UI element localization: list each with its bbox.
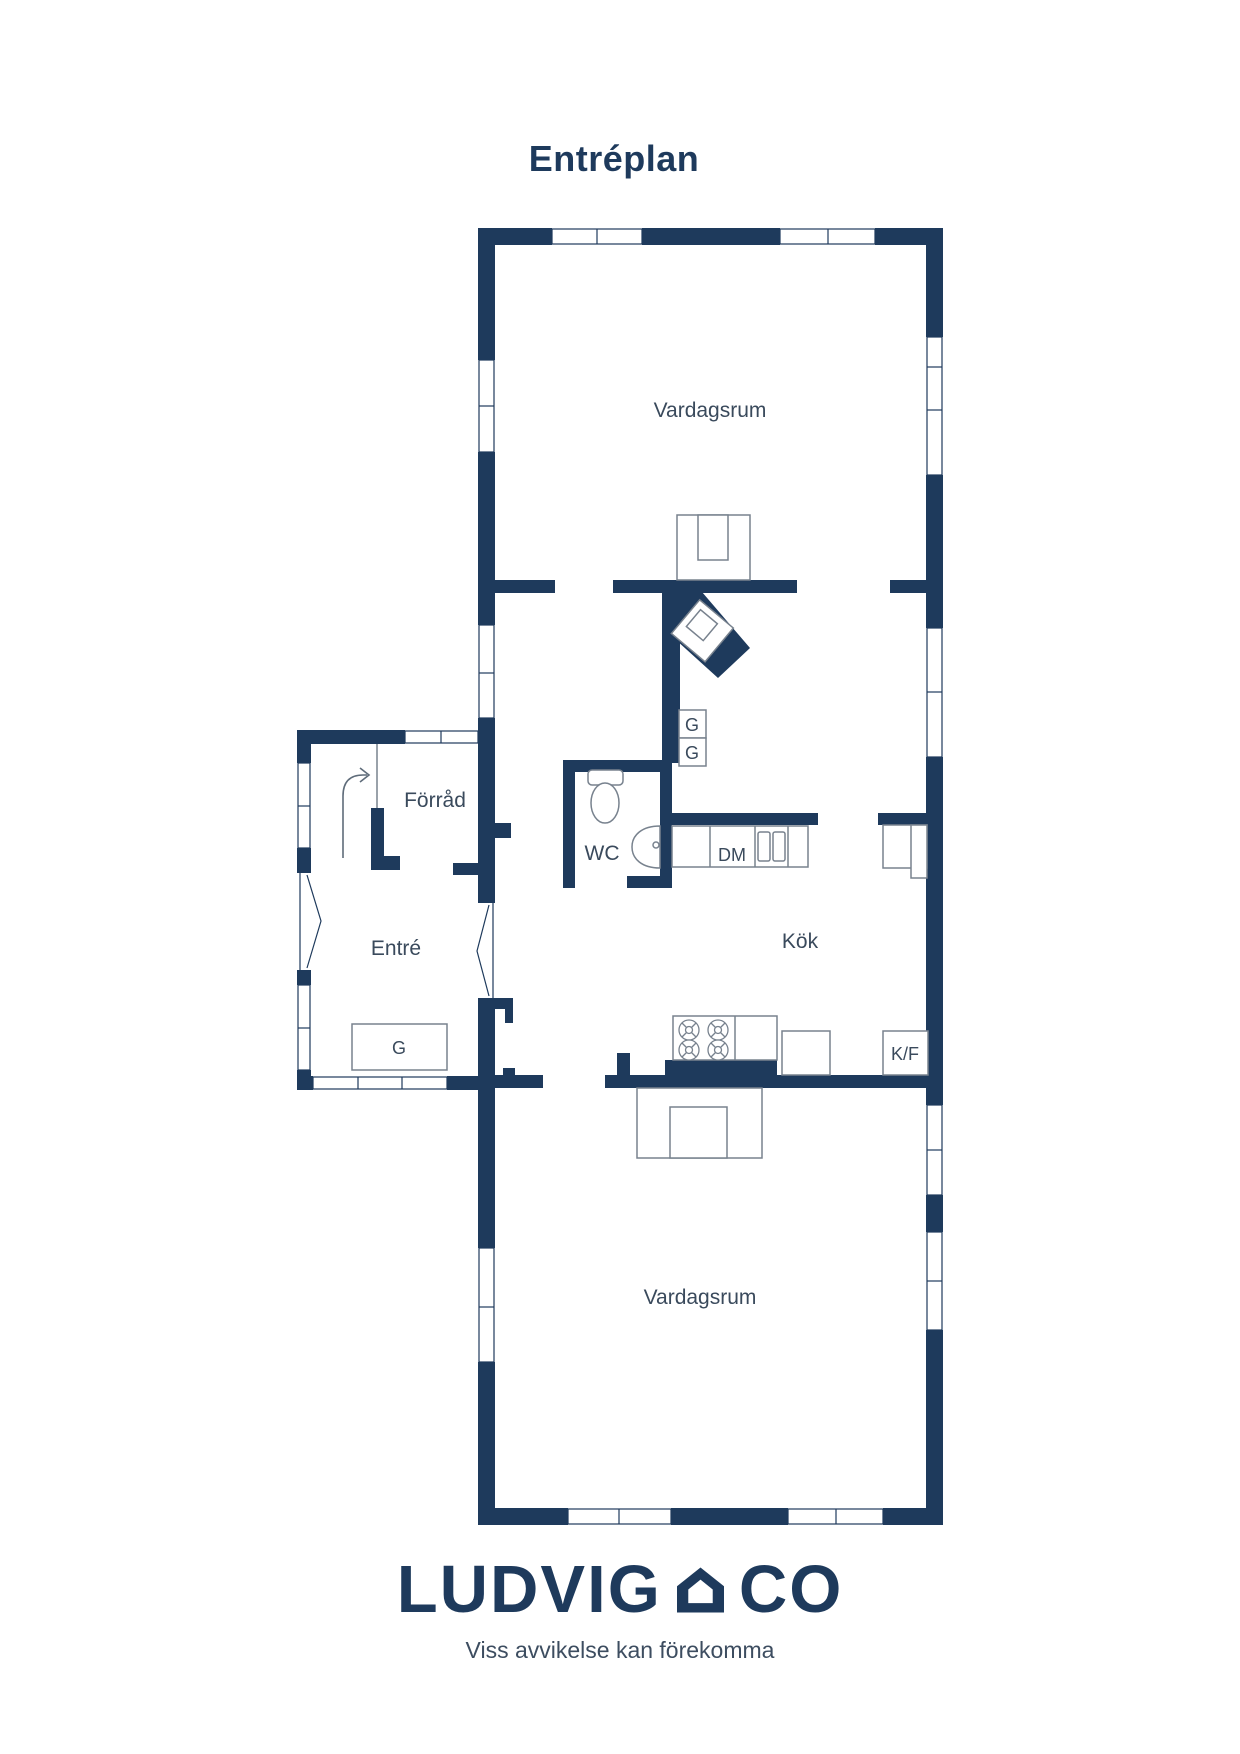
room-label-vardagsrum-top: Vardagsrum (654, 399, 767, 422)
toilet-icon (588, 770, 623, 823)
brand-logo: LUDVIG CO (397, 1556, 844, 1623)
room-label-vardagsrum-bottom: Vardagsrum (644, 1286, 757, 1309)
room-label-forrad: Förråd (404, 789, 466, 812)
room-label-wc: WC (585, 842, 620, 865)
closet-bottom-label: G (685, 743, 699, 763)
entrance-opening-icon (307, 875, 321, 968)
stair-arrow-icon (343, 768, 369, 858)
room-label-entre: Entré (371, 937, 421, 960)
windows (298, 229, 942, 1524)
fixtures (352, 515, 928, 1158)
brand-disclaimer: Viss avvikelse kan förekomma (466, 1637, 775, 1664)
brand-word-co: CO (739, 1556, 844, 1623)
sink-basin-right (773, 832, 785, 861)
brand-house-icon (677, 1567, 724, 1613)
fireplace-bottom-icon (637, 1088, 762, 1158)
brand-word-ludvig: LUDVIG (397, 1556, 662, 1623)
fridge-freezer-label: K/F (891, 1044, 919, 1064)
dishwasher-label: DM (718, 845, 746, 865)
floor-plan: Vardagsrum Förråd Entré WC Kök Vardagsru… (0, 0, 1240, 1754)
stove-icon (673, 1016, 777, 1060)
room-label-kok: Kök (782, 930, 819, 953)
fireplace-top-icon (677, 515, 750, 580)
sink-icon (632, 826, 660, 868)
footer: LUDVIG CO Viss avvikelse kan förekomma (0, 1556, 1240, 1664)
right-counter (883, 825, 927, 878)
cabinet-box (782, 1031, 830, 1075)
walls (297, 228, 943, 1525)
wardrobe-entre-label: G (392, 1038, 406, 1058)
hall-opening-icon (477, 905, 489, 996)
door-openings (300, 873, 493, 998)
sink-basin-left (758, 832, 770, 861)
closet-top-label: G (685, 715, 699, 735)
